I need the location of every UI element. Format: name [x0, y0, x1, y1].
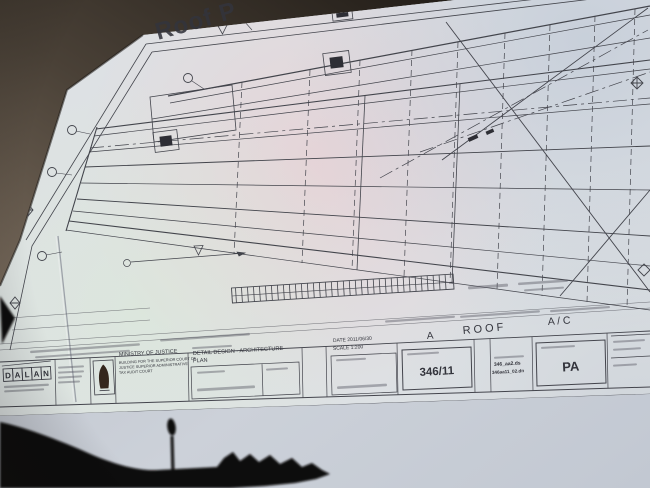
photo-vignette: [0, 0, 650, 488]
photo-of-projected-roof-plan: Roof P A ROOF A / C D A L A: [0, 0, 650, 488]
scene-canvas: Roof P A ROOF A / C D A L A: [0, 0, 650, 488]
